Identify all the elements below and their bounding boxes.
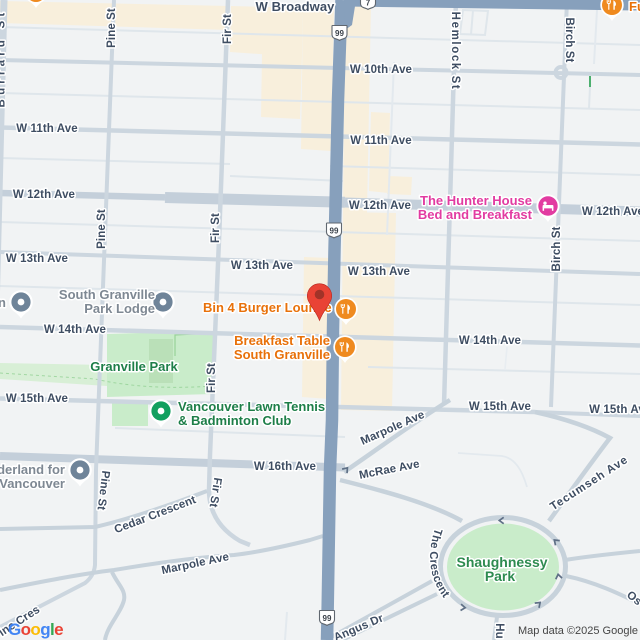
svg-text:W 12th Ave: W 12th Ave xyxy=(349,200,411,212)
svg-text:Pine St: Pine St xyxy=(106,8,118,48)
svg-text:Breakfast Table: Breakfast Table xyxy=(234,333,330,348)
svg-text:W 12th Ave: W 12th Ave xyxy=(582,206,640,218)
svg-text:South Granville: South Granville xyxy=(234,347,330,362)
svg-text:W 15th Av: W 15th Av xyxy=(589,404,640,416)
svg-text:W 16th Ave: W 16th Ave xyxy=(254,461,316,473)
svg-text:W 15th Ave: W 15th Ave xyxy=(469,401,531,413)
svg-text:W Broadway: W Broadway xyxy=(255,0,335,14)
svg-text:Fir St: Fir St xyxy=(222,14,234,44)
svg-text:South Granville: South Granville xyxy=(59,287,155,302)
svg-text:& Badminton Club: & Badminton Club xyxy=(178,413,291,428)
svg-text:Map data ©2025 Google: Map data ©2025 Google xyxy=(518,625,638,637)
svg-text:99: 99 xyxy=(335,29,344,38)
svg-text:Fir St: Fir St xyxy=(206,363,218,393)
svg-text:W 13th Ave: W 13th Ave xyxy=(6,253,68,265)
svg-text:The Hunter House: The Hunter House xyxy=(420,193,532,208)
svg-text:W 14th Ave: W 14th Ave xyxy=(44,324,106,336)
svg-text:Fu: Fu xyxy=(629,0,640,14)
svg-text:Birch St: Birch St xyxy=(551,226,563,271)
svg-text:99: 99 xyxy=(330,227,339,236)
svg-text:W 15th Ave: W 15th Ave xyxy=(6,393,68,405)
svg-text:W 11th Ave: W 11th Ave xyxy=(350,135,412,147)
svg-text:Hemlock St: Hemlock St xyxy=(449,12,461,91)
svg-text:Granville Park: Granville Park xyxy=(90,359,178,374)
svg-text:W 13th Ave: W 13th Ave xyxy=(348,266,410,278)
svg-text:7: 7 xyxy=(366,0,371,8)
svg-text:Park Lodge: Park Lodge xyxy=(84,301,155,316)
svg-text:W 10th Ave: W 10th Ave xyxy=(350,64,412,76)
svg-text:Park: Park xyxy=(485,568,516,584)
svg-text:Bed and Breakfast: Bed and Breakfast xyxy=(418,207,533,222)
svg-text:Hu: Hu xyxy=(493,623,505,639)
svg-text:W 13th Ave: W 13th Ave xyxy=(231,260,293,272)
svg-text:W 14th Ave: W 14th Ave xyxy=(459,335,521,347)
svg-text:derland for: derland for xyxy=(0,462,65,477)
svg-text:Vancouver: Vancouver xyxy=(0,476,65,491)
svg-text:Google: Google xyxy=(8,620,63,639)
svg-text:W 11th Ave: W 11th Ave xyxy=(16,123,78,135)
svg-text:Fir St: Fir St xyxy=(210,213,222,243)
svg-text:Pine St: Pine St xyxy=(96,209,108,249)
svg-text:n: n xyxy=(0,295,6,310)
svg-text:99: 99 xyxy=(323,614,332,623)
svg-text:Burrard St: Burrard St xyxy=(0,9,8,108)
svg-text:W 12th Ave: W 12th Ave xyxy=(13,189,75,201)
svg-text:Birch St: Birch St xyxy=(563,18,575,63)
svg-text:Vancouver Lawn Tennis: Vancouver Lawn Tennis xyxy=(178,399,325,414)
